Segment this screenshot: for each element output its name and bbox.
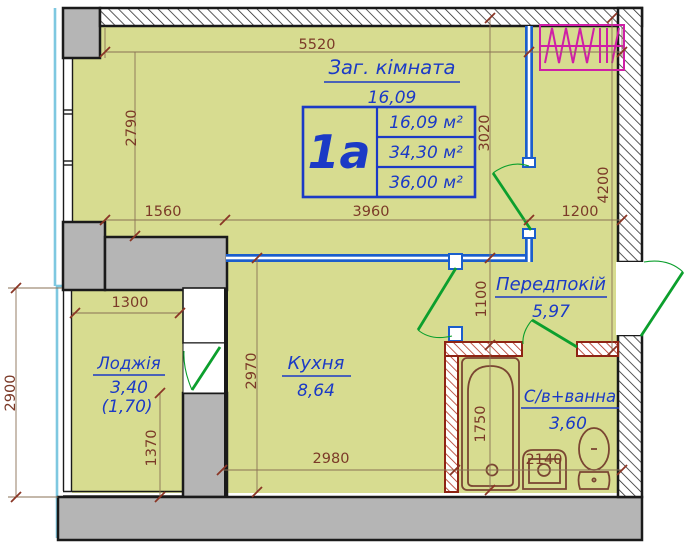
wall-living-loggia [105,237,227,290]
dim-4200: 4200 [596,167,612,204]
loggia-area-coeff: (1,70) [101,397,152,417]
dim-5520: 5520 [299,37,336,53]
wall-right-lower [618,335,642,497]
door-entrance [641,261,683,336]
partition-horizontal-core [226,257,532,260]
hall-name: Передпокій [496,274,606,295]
dim-1200: 1200 [562,204,599,220]
dim-3960: 3960 [353,204,390,220]
hall-area: 5,97 [532,302,570,322]
door-jamb-kitchen-bottom [449,327,462,341]
dim-1560: 1560 [145,204,182,220]
balcony-door-opening [183,288,225,393]
wall-bottom [58,497,642,540]
bath-wall-top-left [445,342,522,356]
living-window-left [63,58,73,222]
wall-loggia-kitchen [183,393,227,497]
dim-2980: 2980 [313,451,350,467]
bath-name: С/в+ванна [524,387,616,406]
living-room-area: 16,09 [368,88,417,108]
dim-2140: 2140 [526,452,563,468]
entrance-opening [616,262,644,335]
bath-area: 3,60 [549,414,587,434]
living-room-name: Заг. кімната [328,56,455,79]
wall-pier-top-left [63,8,100,58]
dim-2790: 2790 [124,110,140,147]
door-jamb-kitchen-top [449,254,462,269]
dim-1750: 1750 [473,406,489,443]
kitchen-name: Кухня [288,353,345,374]
loggia-area: 3,40 [110,378,148,398]
partition-vertical-upper-core [528,26,531,165]
unit-overall-area: 36,00 м² [389,173,463,193]
wall-top [100,8,642,26]
kitchen-area: 8,64 [297,381,335,401]
wall-left-mid [63,222,105,290]
dim-2970: 2970 [244,353,260,390]
dim-1300: 1300 [112,295,149,311]
door-jamb-living-bottom [523,229,535,238]
dim-3020: 3020 [477,115,493,152]
unit-living-area: 16,09 м² [389,113,463,133]
unit-total-area: 34,30 м² [389,143,463,163]
floor-plan: 5520 1560 3960 1200 1300 2980 2140 2790 … [0,0,688,550]
unit-code: 1а [307,125,370,179]
dim-2900: 2900 [3,375,19,412]
dim-1100: 1100 [474,281,490,318]
loggia-name: Лоджія [96,354,160,373]
dim-1370: 1370 [144,430,160,467]
